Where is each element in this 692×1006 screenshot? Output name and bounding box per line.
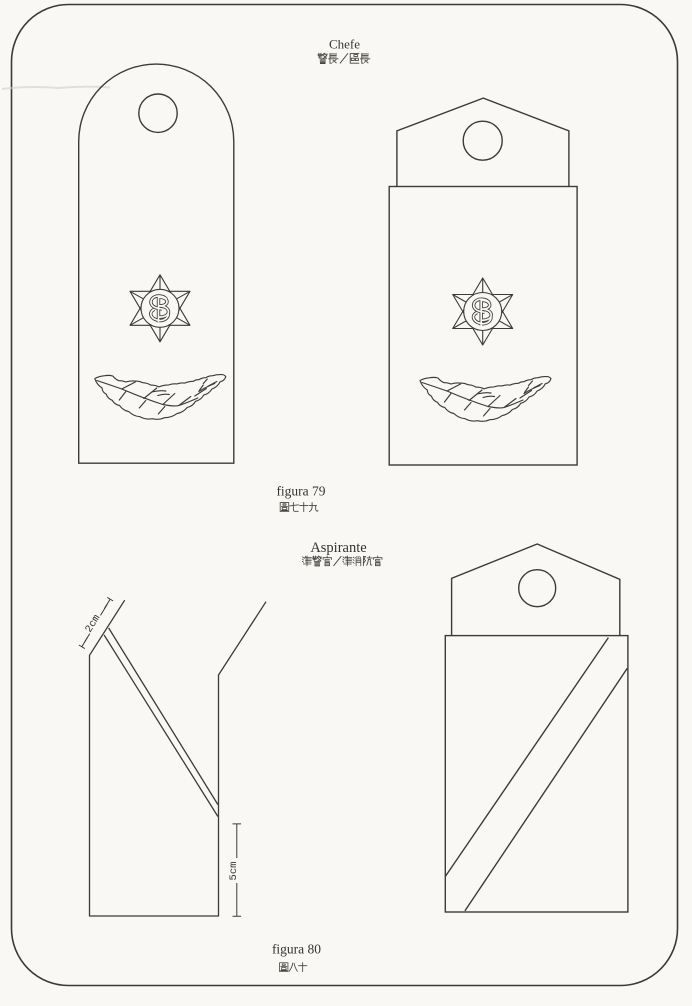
svg-text:figura 79: figura 79 [276,484,325,499]
svg-text:Chefe: Chefe [329,37,360,52]
svg-text:5cm: 5cm [228,862,240,881]
svg-text:Aspirante: Aspirante [310,540,366,556]
svg-text:2cm: 2cm [83,613,103,635]
svg-text:figura 80: figura 80 [272,942,321,957]
